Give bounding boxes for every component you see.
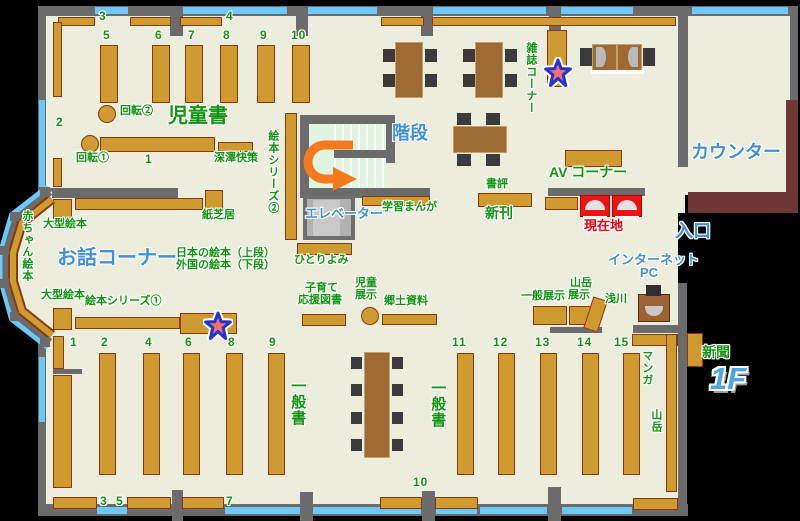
bookshelf bbox=[382, 314, 437, 325]
chair bbox=[425, 49, 437, 62]
chair bbox=[457, 154, 471, 166]
bookshelf bbox=[53, 158, 62, 187]
zasshi-corner-label: 雑誌コーナー bbox=[524, 42, 536, 114]
bookshelf bbox=[457, 353, 474, 475]
4-label: 9 bbox=[260, 29, 268, 42]
av-corner-label: AV コーナー bbox=[549, 165, 627, 180]
chair bbox=[463, 74, 475, 87]
bookshelf bbox=[53, 375, 72, 488]
reading-table bbox=[453, 126, 507, 153]
bookshelf bbox=[218, 142, 253, 152]
kaidan-label: 階段 bbox=[392, 124, 428, 143]
chair bbox=[392, 439, 403, 451]
counter-desk bbox=[786, 100, 798, 193]
reading-table-long bbox=[364, 352, 390, 458]
bookshelf bbox=[545, 197, 578, 210]
kaiten1-label: 回転① bbox=[76, 153, 109, 165]
4-label: 8 bbox=[228, 336, 236, 349]
bookshelf bbox=[100, 137, 215, 152]
bookshelf bbox=[183, 353, 200, 475]
wall-segment bbox=[790, 6, 798, 102]
akachan-ehon-label: 赤ちゃん絵本 bbox=[20, 210, 32, 282]
bookshelf bbox=[257, 45, 275, 103]
bookshelf bbox=[99, 353, 116, 475]
bookshelf bbox=[633, 498, 678, 510]
wall-segment bbox=[678, 6, 688, 167]
wall-segment bbox=[678, 283, 687, 514]
bookshelf bbox=[182, 497, 224, 509]
shimbun-label: 新聞 bbox=[702, 345, 730, 360]
kyodo-shiryo-label: 郷土資料 bbox=[384, 296, 428, 308]
chair bbox=[505, 74, 517, 87]
bookshelf bbox=[220, 45, 238, 103]
1-label: 6 bbox=[155, 29, 163, 42]
1-label: 5 bbox=[116, 495, 124, 508]
sofa-base bbox=[591, 70, 644, 74]
rotating-rack-1 bbox=[81, 135, 99, 153]
counter-desk bbox=[688, 192, 798, 213]
jido-tenji-2-label: 展示 bbox=[355, 290, 377, 302]
kaiten2-label: 回転② bbox=[120, 106, 153, 118]
sofa-armrest bbox=[580, 48, 592, 66]
sofa-armrest bbox=[643, 48, 655, 66]
0-label: 1 bbox=[70, 336, 78, 349]
4-label: 15 bbox=[614, 336, 629, 349]
kosodate-2-label: 応援図書 bbox=[298, 295, 342, 307]
1-label: 4 bbox=[226, 10, 234, 23]
0-label: 11 bbox=[452, 336, 467, 349]
shinkan-label: 新刊 bbox=[485, 206, 513, 221]
chair bbox=[392, 384, 403, 396]
window bbox=[433, 7, 546, 14]
bookshelf bbox=[100, 45, 118, 103]
1-label: 12 bbox=[493, 336, 508, 349]
newspaper-shelf bbox=[687, 333, 703, 367]
wall-segment bbox=[300, 115, 395, 124]
window bbox=[562, 507, 632, 514]
wall-segment bbox=[548, 487, 561, 521]
star-marker-magazine bbox=[543, 57, 573, 87]
bookshelf bbox=[268, 353, 285, 475]
window bbox=[308, 7, 377, 14]
0-label: 3 bbox=[100, 495, 108, 508]
chair bbox=[505, 49, 517, 62]
u-turn-arrow-icon bbox=[303, 133, 365, 195]
bookshelf bbox=[53, 22, 62, 97]
window bbox=[692, 7, 788, 14]
chair bbox=[425, 74, 437, 87]
bookshelf bbox=[533, 306, 567, 325]
bookshelf bbox=[58, 17, 95, 26]
bookshelf bbox=[540, 353, 557, 475]
reading-table bbox=[475, 42, 503, 98]
bookshelf bbox=[185, 45, 203, 103]
kamishibai-label: 紙芝居 bbox=[202, 210, 235, 222]
window bbox=[225, 507, 300, 514]
children-center-shelf-label: 1 bbox=[145, 153, 153, 166]
5-label: 10 bbox=[291, 29, 306, 42]
children-display-stand bbox=[361, 307, 379, 325]
shohyo-label: 書評 bbox=[486, 179, 508, 191]
pc-monitor-icon bbox=[646, 285, 661, 296]
bookshelf bbox=[292, 45, 310, 103]
ehon-series1-label: 絵本シリーズ① bbox=[85, 296, 161, 308]
reading-table bbox=[395, 42, 423, 98]
bookshelf bbox=[75, 317, 180, 329]
sangaku-tenji-2-label: 展示 bbox=[568, 290, 590, 302]
counter-label: カウンター bbox=[691, 143, 781, 162]
bookshelf bbox=[302, 314, 346, 326]
bookshelf bbox=[53, 497, 97, 509]
gaikoku-no-ehon-label: 外国の絵本（下段） bbox=[176, 260, 275, 272]
bookshelf bbox=[380, 497, 422, 509]
window bbox=[561, 7, 633, 14]
gakushu-manga-label: 学習まんが bbox=[382, 202, 437, 214]
genzaichi-label: 現在地 bbox=[584, 219, 623, 233]
window bbox=[480, 507, 547, 514]
5-label: 9 bbox=[269, 336, 277, 349]
bookshelf bbox=[130, 17, 171, 26]
ippansho-2-label: 一般書 bbox=[429, 380, 445, 428]
jidosho-label: 児童書 bbox=[168, 106, 228, 128]
fukazawa-label: 深澤快策 bbox=[214, 153, 258, 165]
2-label: 7 bbox=[226, 495, 234, 508]
manga-label: マンガ bbox=[640, 350, 652, 386]
sofa-cushion bbox=[596, 47, 606, 67]
1-label: 2 bbox=[101, 336, 109, 349]
ehon-series2-label: 絵本シリーズ② bbox=[266, 130, 278, 214]
bookshelf bbox=[152, 45, 170, 103]
floor-1f-label: 1F bbox=[710, 362, 746, 395]
wall-segment bbox=[300, 492, 313, 521]
ippansho-1-label: 一般書 bbox=[289, 378, 305, 426]
wall-segment bbox=[633, 325, 687, 333]
pc-label: PC bbox=[640, 266, 658, 280]
2-label: 4 bbox=[145, 336, 153, 349]
elevator-label: エレベーター bbox=[305, 207, 383, 221]
bookshelf bbox=[623, 353, 640, 475]
chair bbox=[457, 113, 471, 125]
bookshelf bbox=[582, 353, 599, 475]
3-label: 8 bbox=[223, 29, 231, 42]
bookshelf bbox=[127, 497, 171, 509]
chair bbox=[383, 49, 395, 62]
bookshelf bbox=[180, 17, 222, 26]
sangaku-label: 山岳 bbox=[649, 409, 661, 433]
chair bbox=[351, 439, 362, 451]
sofa-cushion bbox=[628, 47, 638, 67]
south-center-label: 10 bbox=[413, 476, 428, 489]
children-side-label: 2 bbox=[56, 116, 64, 129]
bookshelf bbox=[666, 334, 677, 492]
0-label: 3 bbox=[99, 10, 107, 23]
window bbox=[97, 507, 127, 514]
asakawa-label: 浅川 bbox=[605, 294, 627, 306]
chair bbox=[392, 412, 403, 424]
chair bbox=[351, 384, 362, 396]
chair bbox=[351, 412, 362, 424]
library-floor-map: 児童書回転②回転①1深澤快策紙芝居大型絵本赤ちゃん絵本お話コーナー日本の絵本（上… bbox=[0, 0, 800, 521]
wall-segment bbox=[53, 369, 82, 374]
bookshelf bbox=[75, 198, 203, 210]
ogata-ehon-2-label: 大型絵本 bbox=[41, 290, 85, 302]
chair bbox=[463, 49, 475, 62]
hitoriyomi-label: ひとりよみ bbox=[294, 255, 349, 267]
2-label: 7 bbox=[188, 29, 196, 42]
0-label: 5 bbox=[103, 29, 111, 42]
picture-book-series2-shelf bbox=[285, 113, 297, 240]
window bbox=[183, 7, 287, 14]
wall-segment bbox=[46, 188, 178, 198]
chair bbox=[383, 74, 395, 87]
3-label: 6 bbox=[185, 336, 193, 349]
iriguchi-label: 入口 bbox=[675, 222, 711, 241]
chair bbox=[486, 113, 500, 125]
ohanashi-corner-label: お話コーナー bbox=[57, 248, 177, 270]
bookshelf bbox=[226, 353, 243, 475]
bookshelf bbox=[381, 17, 424, 26]
ippan-tenji-label: 一般展示 bbox=[521, 291, 565, 303]
chair bbox=[351, 357, 362, 369]
magazine-wall-shelf bbox=[432, 17, 676, 26]
2-label: 13 bbox=[535, 336, 550, 349]
bookshelf bbox=[143, 353, 160, 475]
chair bbox=[392, 357, 403, 369]
rotating-rack-2 bbox=[98, 105, 116, 123]
bookshelf bbox=[498, 353, 515, 475]
chair bbox=[486, 154, 500, 166]
window bbox=[39, 100, 45, 187]
wall-segment bbox=[422, 491, 435, 521]
window bbox=[39, 357, 45, 422]
bookshelf bbox=[435, 497, 478, 509]
ogata-ehon-1-label: 大型絵本 bbox=[43, 219, 87, 231]
3-label: 14 bbox=[577, 336, 592, 349]
